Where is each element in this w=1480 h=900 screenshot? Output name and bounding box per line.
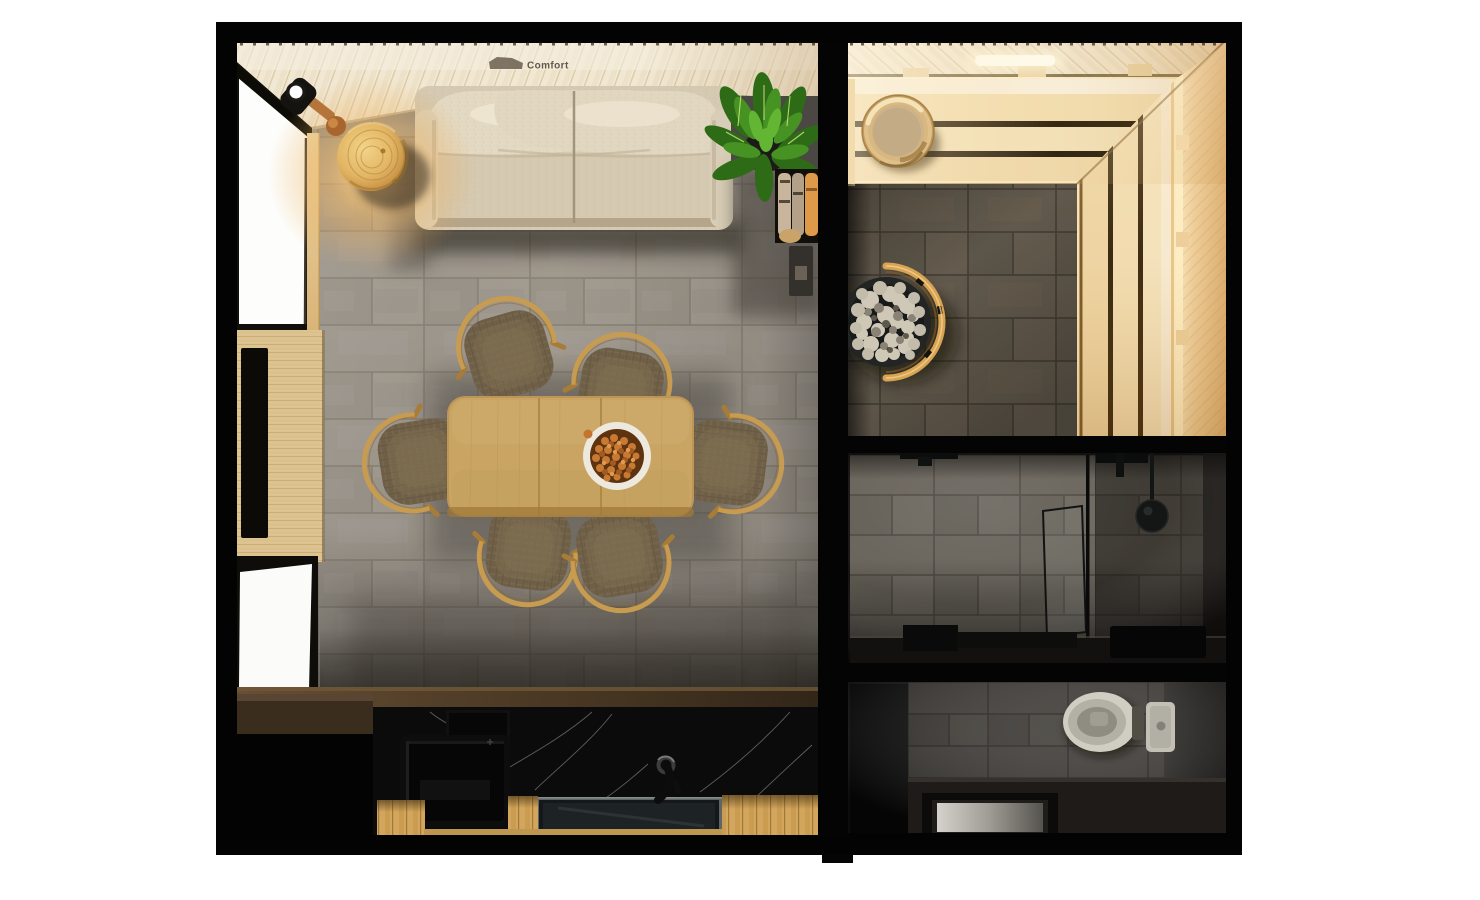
svg-text:Comfort: Comfort: [527, 61, 569, 72]
